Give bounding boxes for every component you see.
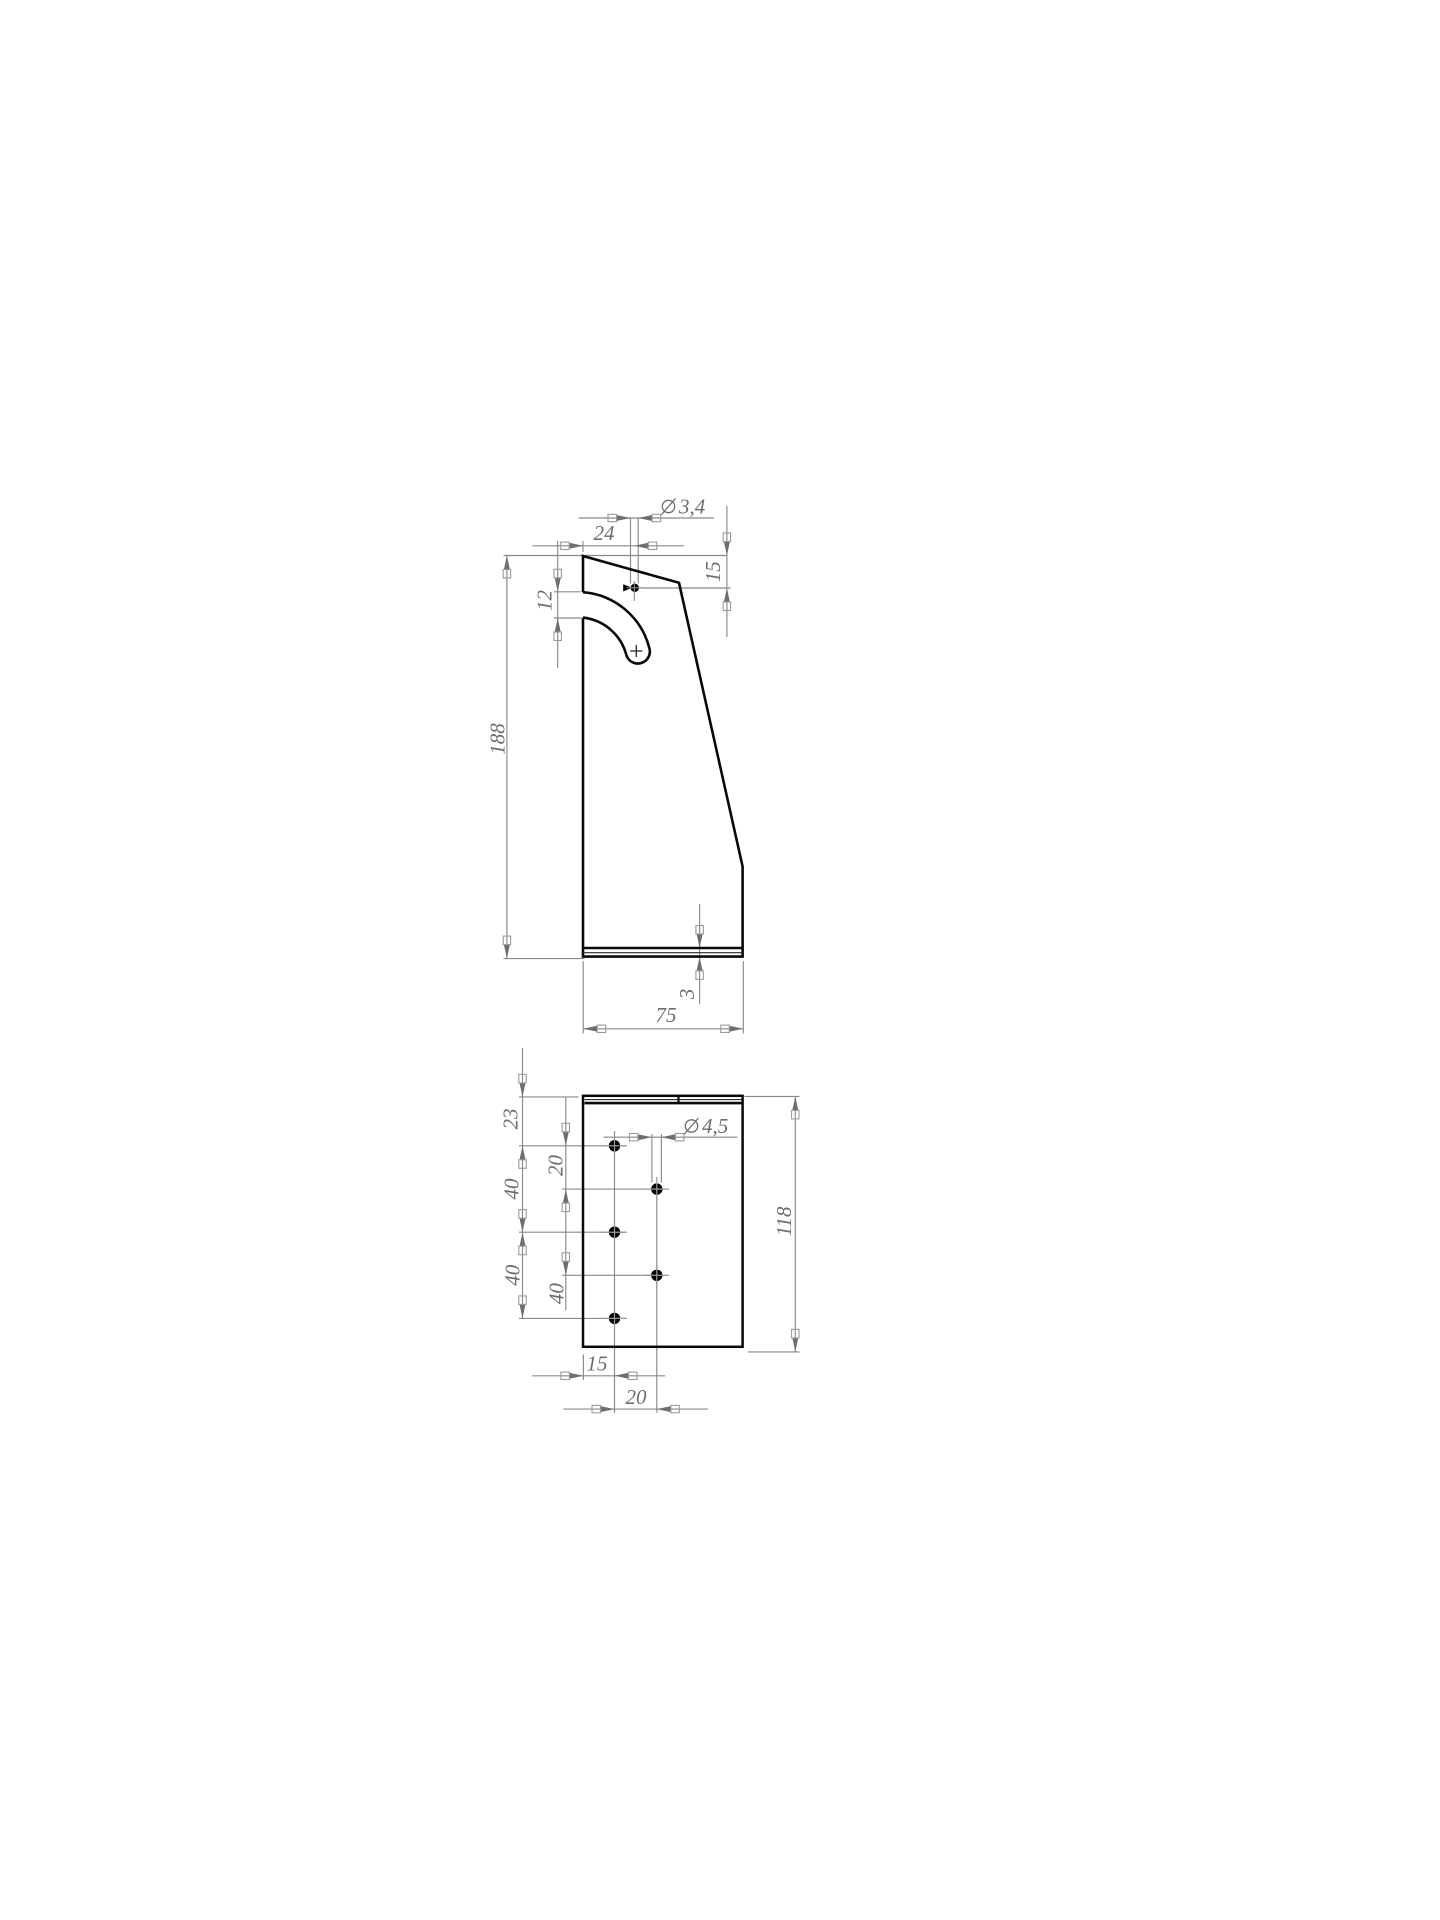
svg-text:3: 3 <box>675 989 699 1001</box>
svg-text:40: 40 <box>501 1264 525 1286</box>
svg-text:15: 15 <box>701 561 725 582</box>
svg-text:40: 40 <box>500 1178 524 1200</box>
svg-text:24: 24 <box>594 521 616 545</box>
svg-text:20: 20 <box>626 1385 648 1409</box>
svg-text:75: 75 <box>656 1003 677 1027</box>
svg-text:4,5: 4,5 <box>702 1114 728 1138</box>
svg-text:188: 188 <box>486 723 510 755</box>
svg-text:118: 118 <box>772 1206 796 1236</box>
svg-text:12: 12 <box>533 590 557 612</box>
svg-text:23: 23 <box>499 1109 523 1130</box>
svg-text:3,4: 3,4 <box>678 495 706 519</box>
svg-text:40: 40 <box>545 1283 569 1305</box>
svg-text:20: 20 <box>544 1155 568 1177</box>
svg-text:15: 15 <box>587 1352 608 1376</box>
